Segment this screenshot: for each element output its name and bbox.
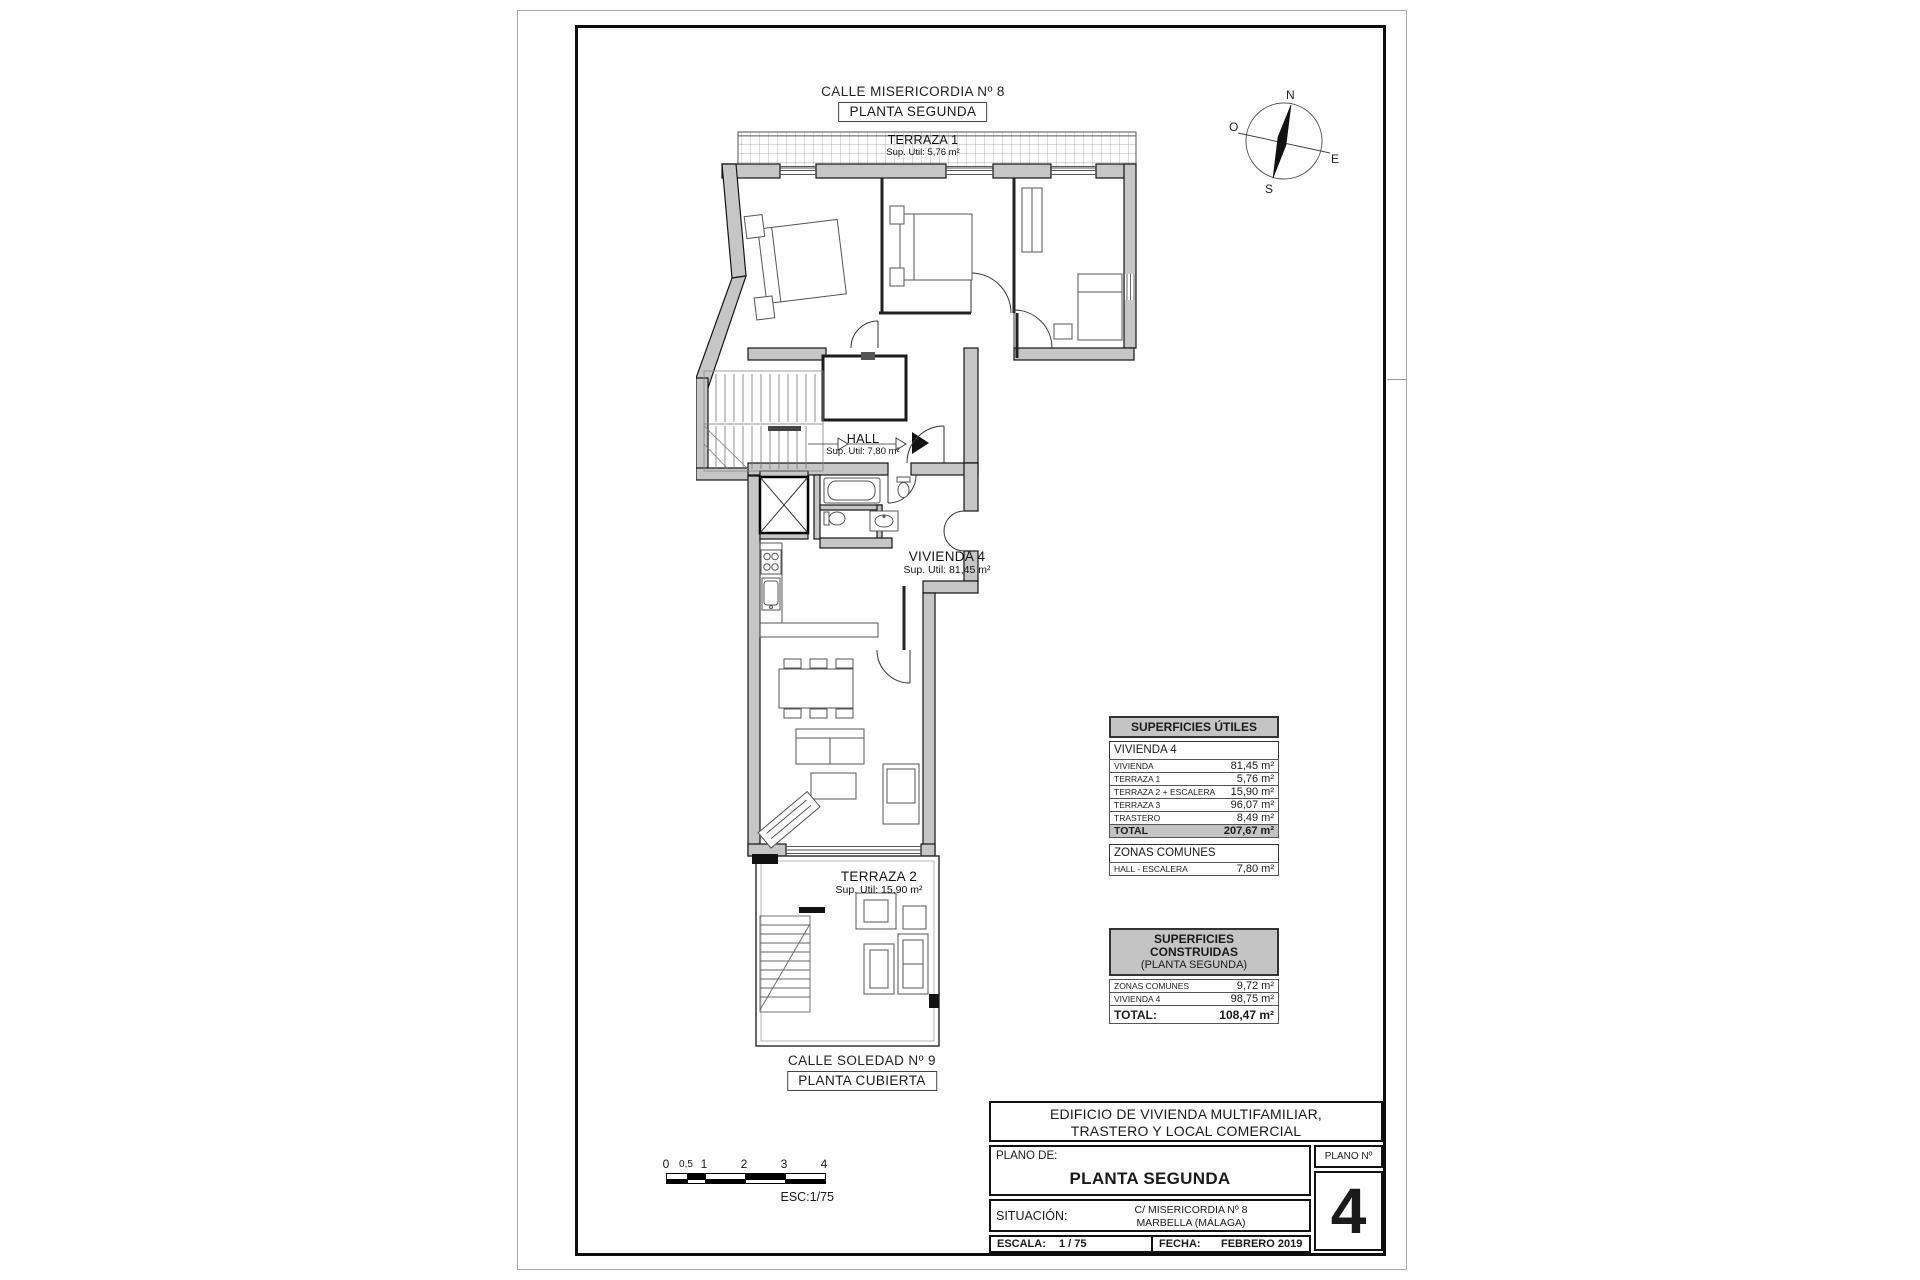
plano-no-box: 4 <box>1314 1171 1383 1251</box>
room-name: TERRAZA 2 <box>836 869 923 884</box>
main-staircase <box>704 371 823 471</box>
situacion-label: SITUACIÓN: <box>996 1209 1068 1223</box>
project-title-line2: TRASTERO Y LOCAL COMERCIAL <box>991 1123 1381 1140</box>
drawing-sheet: CALLE MISERICORDIA Nº 8 PLANTA SEGUNDA N… <box>517 10 1407 1270</box>
row-value: 207,67 m² <box>1224 825 1274 837</box>
compass-rose: N S O E <box>1229 83 1341 203</box>
scale-tick: 0,5 <box>679 1159 693 1170</box>
scale-tick: 0 <box>663 1157 670 1171</box>
room-label-terraza2: TERRAZA 2 Sup. Util: 15,90 m² <box>836 869 923 896</box>
row-value: 81,45 m² <box>1231 760 1274 772</box>
utiles-total-row: TOTAL 207,67 m² <box>1109 824 1279 838</box>
compass-n-label: N <box>1286 88 1295 102</box>
table-row: HALL - ESCALERA 7,80 m² <box>1109 862 1279 876</box>
floor-plan <box>696 126 1166 1066</box>
row-value: 5,76 m² <box>1237 773 1274 785</box>
row-label: TERRAZA 3 <box>1114 800 1160 810</box>
closet-box <box>823 352 906 420</box>
fecha-value: FEBRERO 2019 <box>1215 1238 1308 1250</box>
situacion-box: SITUACIÓN: C/ MISERICORDIA Nº 8 MARBELLA… <box>989 1199 1311 1232</box>
margin-divider-line <box>1387 379 1407 380</box>
bathroom-fixtures <box>824 477 910 531</box>
room-name: TERRAZA 1 <box>886 133 959 147</box>
fecha-label: FECHA: <box>1153 1238 1215 1250</box>
row-label: HALL - ESCALERA <box>1114 864 1188 874</box>
room-label-vivienda4: VIVIENDA 4 Sup. Util: 81,45 m² <box>904 549 991 576</box>
zonas-comunes-header: ZONAS COMUNES <box>1109 844 1279 863</box>
plano-no-label-box: PLANO Nº <box>1314 1145 1383 1168</box>
scale-tick: 3 <box>781 1157 788 1171</box>
street-name-top: CALLE MISERICORDIA Nº 8 <box>821 84 1005 99</box>
scale-bar: 0 0,5 1 2 3 4 ESC:1/75 <box>658 1157 834 1209</box>
escala-label: ESCALA: <box>991 1238 1053 1250</box>
table-row: TERRAZA 3 96,07 m² <box>1109 798 1279 812</box>
elevator <box>760 477 808 533</box>
room-name: HALL <box>826 432 899 446</box>
compass-o-label: O <box>1229 120 1238 134</box>
plano-name: PLANTA SEGUNDA <box>991 1169 1309 1189</box>
room-label-hall: HALL Sup. Util: 7,80 m² <box>826 432 899 457</box>
row-label: VIVIENDA 4 <box>1114 994 1160 1004</box>
row-value: 98,75 m² <box>1231 993 1274 1005</box>
right-wall-window-gap <box>1125 274 1135 300</box>
row-value: 96,07 m² <box>1231 799 1274 811</box>
row-value: 9,72 m² <box>1237 980 1274 992</box>
floor-name-top: PLANTA SEGUNDA <box>839 102 988 122</box>
row-label: TERRAZA 1 <box>1114 774 1160 784</box>
table-row: TERRAZA 2 + ESCALERA 15,90 m² <box>1109 785 1279 799</box>
row-value: 7,80 m² <box>1237 863 1274 875</box>
plano-number: 4 <box>1316 1173 1381 1249</box>
room-area: Sup. Util: 5,76 m² <box>886 147 959 158</box>
top-street-label-group: CALLE MISERICORDIA Nº 8 PLANTA SEGUNDA <box>821 84 1005 122</box>
street-name-bottom: CALLE SOLEDAD Nº 9 <box>787 1053 937 1068</box>
table-row: VIVIENDA 4 98,75 m² <box>1109 992 1279 1006</box>
construidas-subtitle: (PLANTA SEGUNDA) <box>1111 959 1277 972</box>
scale-bar-graphic <box>666 1173 826 1184</box>
row-label: TOTAL <box>1114 825 1148 837</box>
row-value: 108,47 m² <box>1219 1008 1274 1022</box>
terraza2-furniture <box>856 893 928 994</box>
row-label: TRASTERO <box>1114 813 1160 823</box>
situacion-address-line1: C/ MISERICORDIA Nº 8 <box>1101 1204 1281 1217</box>
table-row: ZONAS COMUNES 9,72 m² <box>1109 979 1279 993</box>
escala-value: 1 / 75 <box>1053 1238 1151 1250</box>
row-value: 15,90 m² <box>1231 786 1274 798</box>
utiles-table-title: SUPERFICIES ÚTILES <box>1109 716 1279 738</box>
table-row: TERRAZA 1 5,76 m² <box>1109 772 1279 786</box>
project-title-line1: EDIFICIO DE VIVIENDA MULTIFAMILIAR, <box>991 1106 1381 1123</box>
bottom-street-label-group: CALLE SOLEDAD Nº 9 PLANTA CUBIERTA <box>787 1053 937 1091</box>
scale-tick: 2 <box>741 1157 748 1171</box>
utiles-group-header: VIVIENDA 4 <box>1109 741 1279 760</box>
escala-fecha-box: ESCALA: 1 / 75 FECHA: FEBRERO 2019 <box>989 1235 1311 1253</box>
area-tables: SUPERFICIES ÚTILES VIVIENDA 4 VIVIENDA 8… <box>1109 716 1279 1024</box>
kitchen-fixtures <box>760 543 878 637</box>
table-row: TRASTERO 8,49 m² <box>1109 811 1279 825</box>
project-title-box: EDIFICIO DE VIVIENDA MULTIFAMILIAR, TRAS… <box>989 1101 1383 1142</box>
scale-tick: 1 <box>701 1157 708 1171</box>
construidas-total-row: TOTAL: 108,47 m² <box>1109 1005 1279 1024</box>
room-label-terraza1: TERRAZA 1 Sup. Util: 5,76 m² <box>886 133 959 158</box>
room-area: Sup. Util: 81,45 m² <box>904 564 991 576</box>
row-value: 8,49 m² <box>1237 812 1274 824</box>
construidas-table-title: SUPERFICIES CONSTRUIDAS (PLANTA SEGUNDA) <box>1109 928 1279 976</box>
room-area: Sup. Util: 15,90 m² <box>836 884 923 896</box>
compass-s-label: S <box>1265 182 1273 196</box>
room-name: VIVIENDA 4 <box>904 549 991 564</box>
situacion-address-line2: MARBELLA (MÁLAGA) <box>1101 1217 1281 1230</box>
plano-de-label: PLANO DE: <box>996 1150 1057 1162</box>
row-label: TERRAZA 2 + ESCALERA <box>1114 787 1215 797</box>
plano-box: PLANO DE: PLANTA SEGUNDA <box>989 1145 1311 1196</box>
construidas-title-line: SUPERFICIES CONSTRUIDAS <box>1111 933 1277 959</box>
living-furniture <box>758 659 919 848</box>
compass-e-label: E <box>1331 152 1339 166</box>
room-area: Sup. Util: 7,80 m² <box>826 446 899 457</box>
scale-tick: 4 <box>821 1157 828 1171</box>
row-label: TOTAL: <box>1114 1008 1157 1022</box>
bedroom-furniture <box>744 188 1122 340</box>
scale-text: ESC:1/75 <box>780 1190 834 1204</box>
floor-name-bottom: PLANTA CUBIERTA <box>787 1071 937 1091</box>
row-label: ZONAS COMUNES <box>1114 981 1189 991</box>
table-row: VIVIENDA 81,45 m² <box>1109 759 1279 773</box>
row-label: VIVIENDA <box>1114 761 1154 771</box>
